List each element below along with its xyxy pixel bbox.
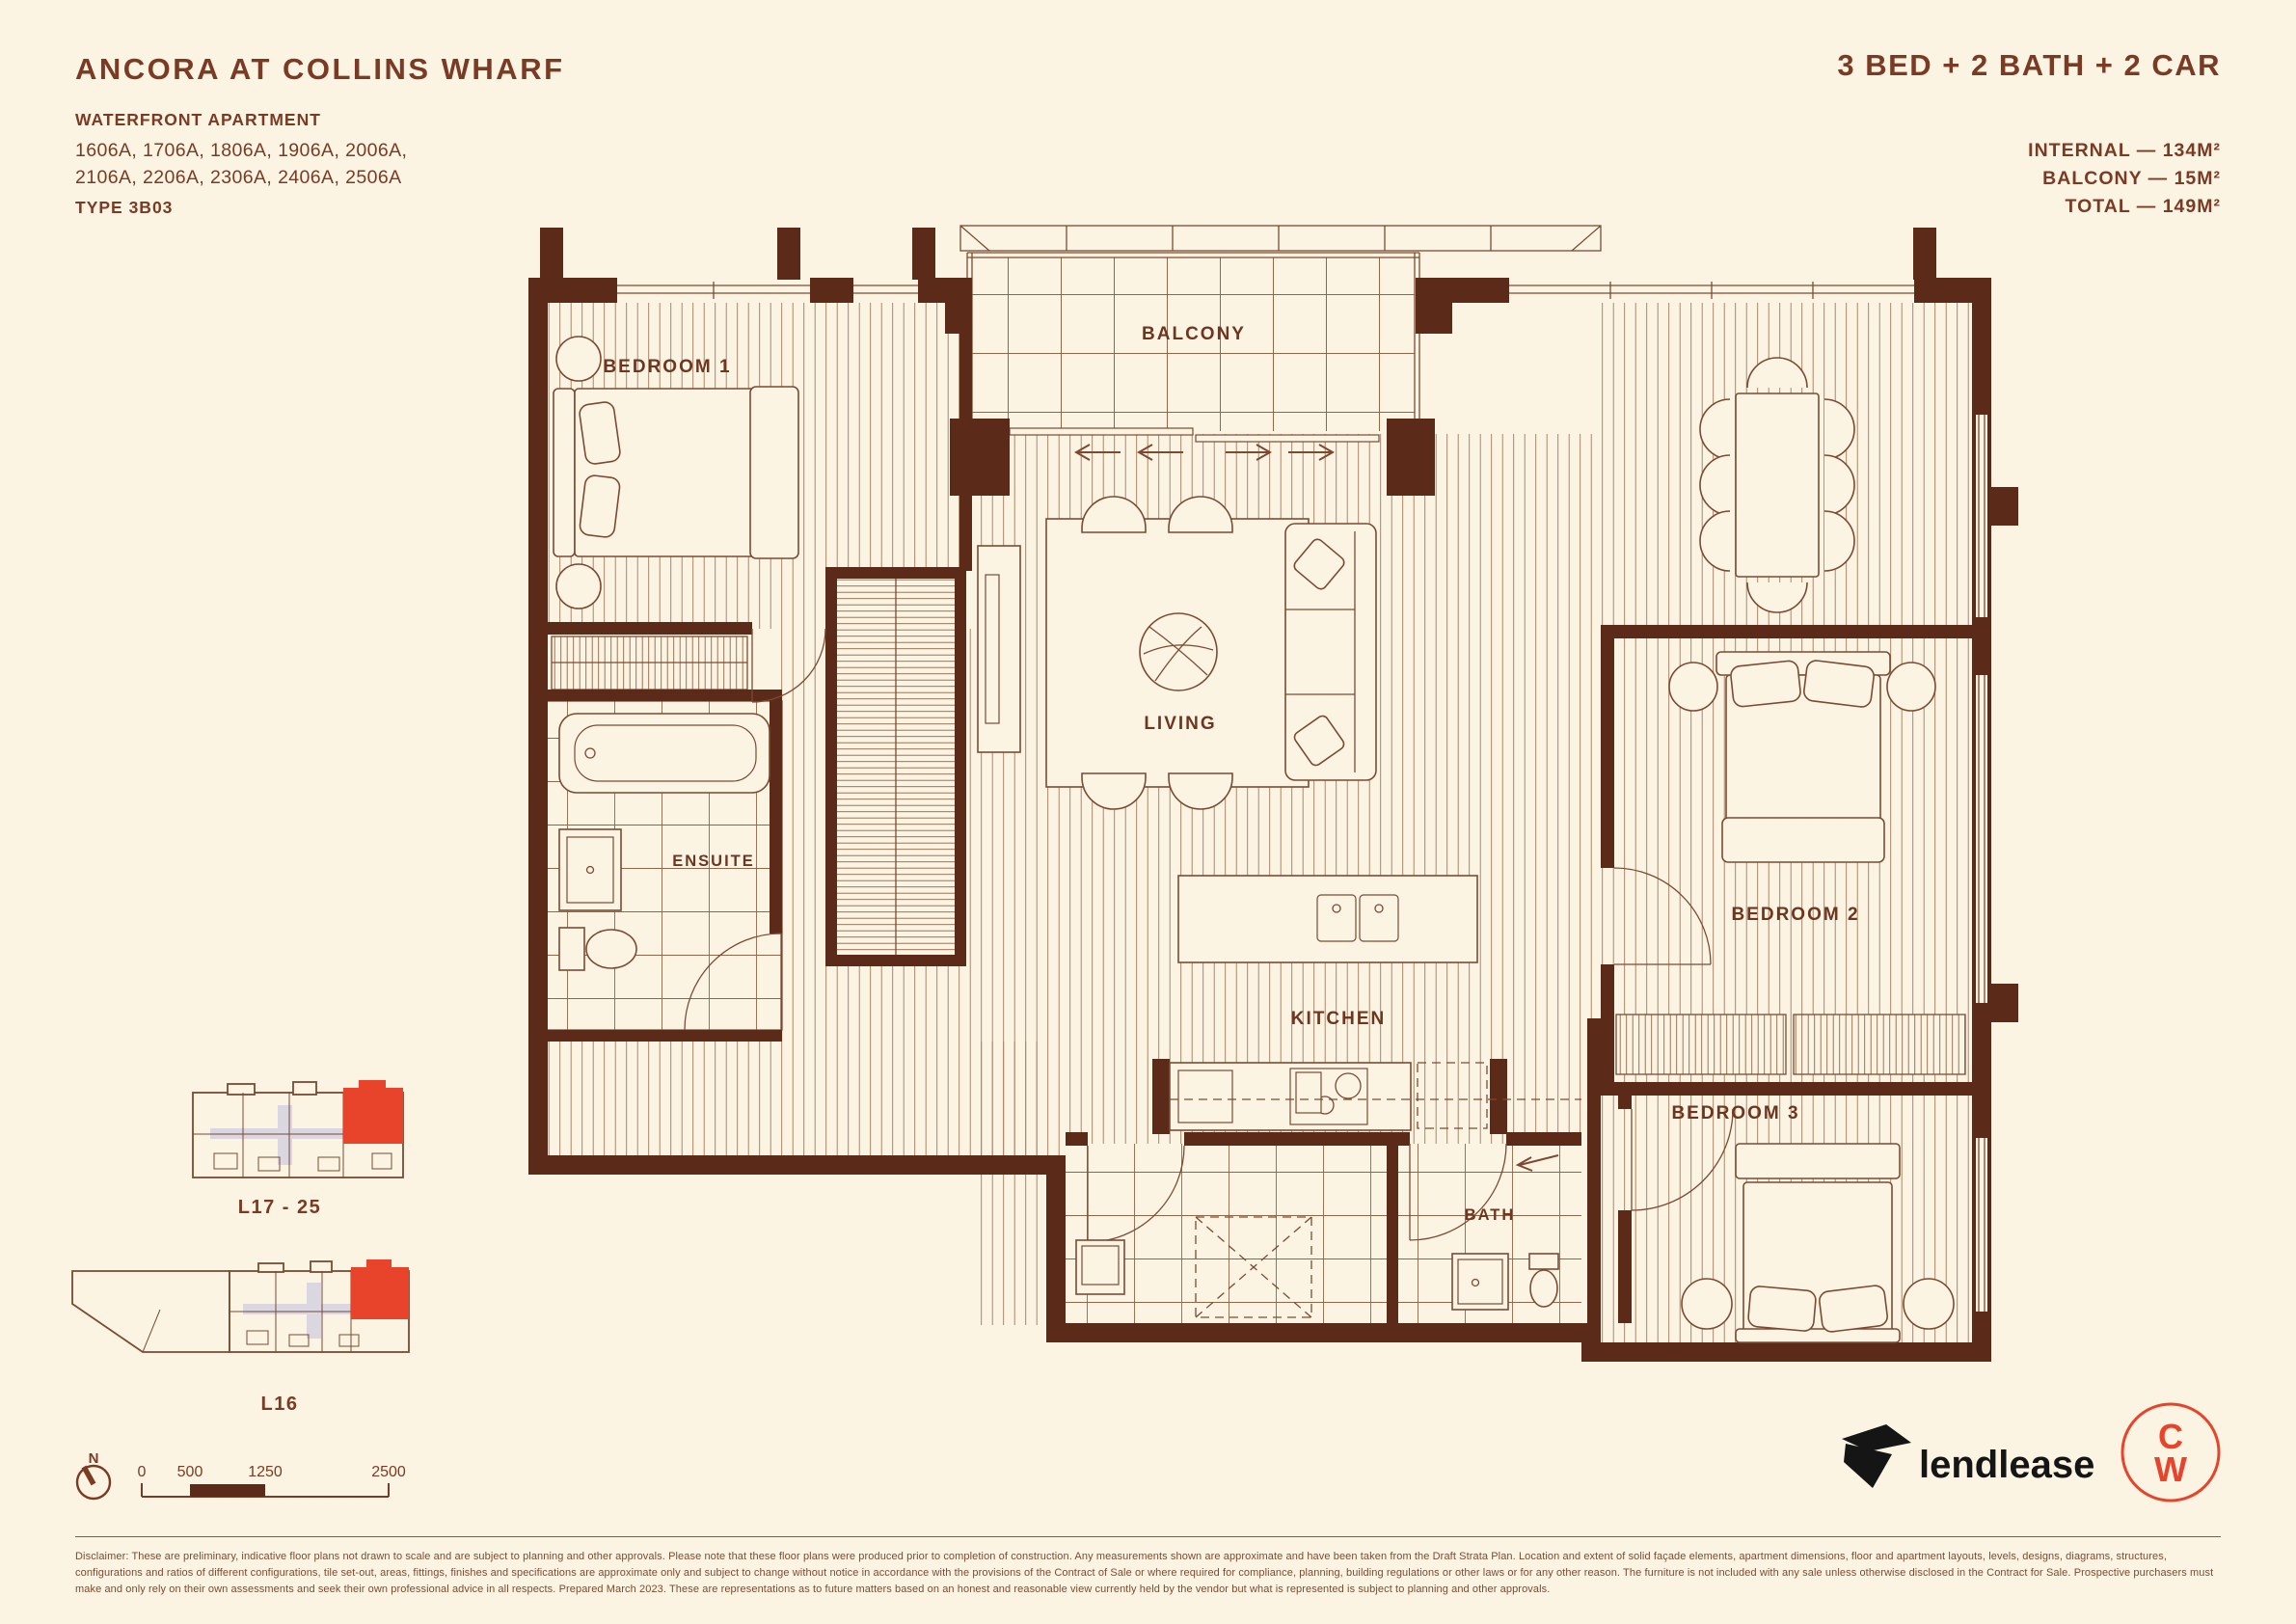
room-label-bedroom-1: BEDROOM 1 (603, 357, 731, 377)
scale-bar: 0 500 1250 2500 (138, 1464, 406, 1497)
north-label: N (89, 1450, 99, 1467)
scale-tick-2500: 2500 (371, 1464, 406, 1480)
keyplan-highlight-upper (343, 1080, 403, 1144)
room-label-bedroom-2: BEDROOM 2 (1731, 905, 1859, 925)
scale-tick-0: 0 (138, 1464, 147, 1480)
compass-needle (84, 1467, 94, 1484)
cw-logo: C W (2122, 1404, 2219, 1501)
footer-divider (75, 1536, 2221, 1537)
room-label-balcony: BALCONY (1142, 324, 1246, 344)
room-label-living: LIVING (1144, 714, 1216, 734)
linen-cupboard (825, 567, 966, 966)
floorplan-page: ANCORA AT COLLINS WHARF WATERFRONT APART… (0, 0, 2296, 1624)
scale-tick-1250: 1250 (248, 1464, 283, 1480)
tv-unit (978, 546, 1020, 752)
living-furniture (1046, 497, 1376, 809)
balcony-structure (960, 226, 1601, 460)
disclaimer-text: Disclaimer: These are preliminary, indic… (75, 1549, 2221, 1598)
room-label-bedroom-3: BEDROOM 3 (1671, 1103, 1799, 1123)
keyplan-lower-label: L16 (261, 1394, 299, 1415)
lendlease-bird-body-icon (1844, 1444, 1892, 1488)
key-plan-lower: L16 (72, 1259, 409, 1415)
keyplan-upper-label: L17 - 25 (238, 1197, 321, 1218)
room-label-kitchen: KITCHEN (1291, 1009, 1386, 1029)
scale-tick-500: 500 (177, 1464, 203, 1480)
floor-plan-svg: BEDROOM 1 BALCONY LIVING ENSUITE KITCHEN… (0, 0, 2296, 1624)
lendlease-wordmark: lendlease (1919, 1444, 2094, 1486)
cw-monogram-w: W (2154, 1449, 2187, 1489)
north-arrow: N (77, 1450, 110, 1499)
key-plan-upper: L17 - 25 (193, 1080, 403, 1218)
lendlease-logo: lendlease (1842, 1424, 2094, 1488)
room-label-bath: BATH (1465, 1206, 1516, 1224)
room-label-ensuite: ENSUITE (672, 853, 755, 870)
keyplan-highlight-lower (351, 1259, 409, 1319)
